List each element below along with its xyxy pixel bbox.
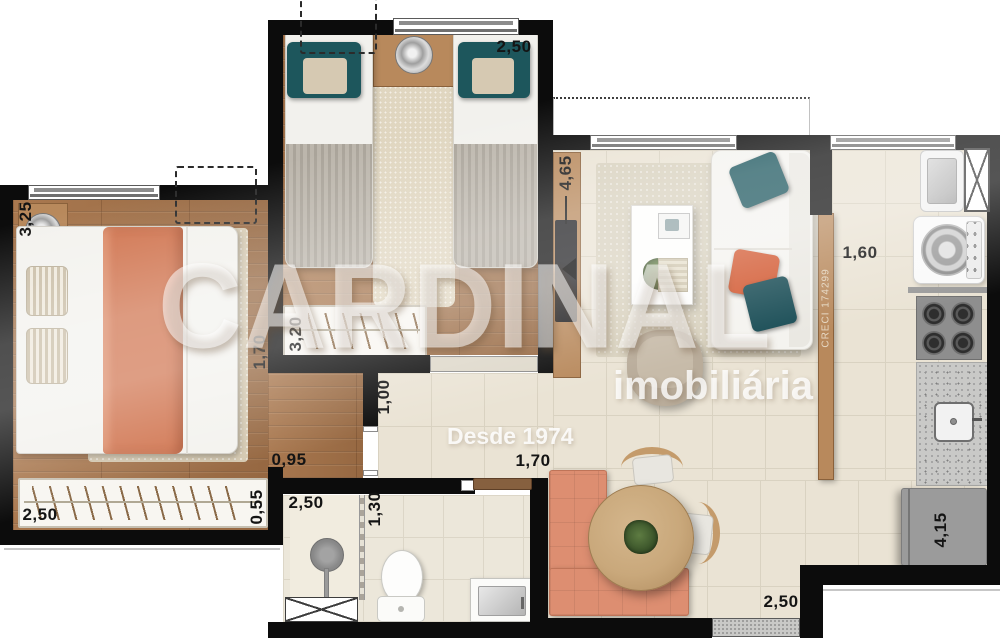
bedroom2-wardrobe-rail — [290, 329, 420, 331]
bedroom2-wardrobe-hangers — [308, 313, 418, 349]
bedroom2-lamp — [395, 36, 433, 74]
hall-door-jamb-bottom — [363, 470, 378, 476]
dim-bedroom1-side: 3,25 — [16, 201, 36, 236]
exterior-line-left — [4, 548, 280, 550]
stove-burner-3 — [922, 331, 946, 355]
dining-service-window — [712, 618, 800, 637]
dim-hall-length: 1,70 — [515, 451, 550, 471]
living-projection — [553, 97, 810, 135]
washer-panel — [966, 221, 982, 279]
service-cabinet — [964, 148, 990, 212]
dim-shower-width: 1,30 — [365, 491, 385, 526]
dim-living-side: 4,65 — [556, 155, 576, 190]
dim-bedroom1-passage: 0,95 — [271, 450, 306, 470]
wall-bedrooms-shared — [268, 20, 283, 373]
sofa-seat-split — [714, 248, 792, 250]
shower-arm — [324, 568, 329, 598]
wall-bedrooms-shared-lower — [268, 467, 283, 530]
bedroom2-rug — [373, 80, 455, 307]
wall-bedroom1-bottom — [0, 530, 283, 545]
bed-pillow-bottom — [26, 328, 68, 384]
kitchen-counter-divider — [818, 213, 834, 480]
laundry-tub-basin — [927, 158, 957, 204]
bedroom1-ac-dashed-box — [175, 166, 257, 224]
bedroom1-window — [28, 185, 160, 200]
dim-bedroom1-wardrobe: 2,50 — [22, 505, 57, 525]
dim-bathroom-width: 2,50 — [288, 493, 323, 513]
single-bed-left-blanket — [286, 144, 372, 267]
bedroom1-wardrobe-rail — [24, 501, 262, 503]
kitchen-faucet — [972, 418, 982, 421]
kitchen-window — [830, 135, 956, 150]
shower-head — [310, 538, 344, 572]
dim-kitchen-side: 4,15 — [931, 512, 951, 547]
bed-runner-orange — [103, 227, 183, 454]
wall-dining-right — [800, 565, 823, 638]
dining-chair-top-seat — [632, 454, 675, 486]
living-window — [590, 135, 737, 150]
wall-bedroom2-bottom — [268, 355, 430, 373]
kitchen-shelf-line — [908, 287, 988, 293]
wall-dining-bottom — [530, 618, 712, 638]
dining-table-plant — [624, 520, 658, 554]
stove-burner-2 — [951, 302, 975, 326]
dim-kitchen-width: 1,60 — [842, 243, 877, 263]
wall-kitchen-step — [810, 135, 832, 215]
bed-pillow-top — [26, 266, 68, 316]
dim-living-tick — [565, 196, 567, 224]
wall-bathroom-bottom — [268, 622, 548, 638]
fridge-door-line — [908, 489, 910, 565]
wall-bedroom1-left — [0, 185, 13, 545]
dim-bedroom2-top: 2,50 — [496, 37, 531, 57]
bathroom-faucet — [521, 597, 524, 609]
dim-bedroom2-wardrobe: 3,20 — [286, 316, 306, 351]
single-bed-right-blanket — [454, 144, 537, 267]
coffee-table-mat — [658, 258, 688, 292]
tray-decor — [665, 219, 679, 231]
floor-plan: 3,25 2,50 4,65 1,60 1,70 3,20 1,00 0,95 … — [0, 0, 1000, 638]
bedroom2-window — [393, 18, 519, 35]
wall-bedroom2-right — [538, 20, 553, 373]
shower-floor-box — [285, 597, 358, 622]
kitchen-faucet-base — [950, 418, 957, 425]
dim-bedroom1-wardrobe-depth: 0,55 — [247, 489, 267, 524]
bathroom-sink — [478, 586, 526, 616]
single-bed-right-beige-pillow — [472, 58, 514, 94]
toilet-button — [398, 606, 404, 612]
wall-kitchen-bottom — [805, 565, 1000, 585]
armchair-seat — [637, 336, 693, 388]
dim-hall-width: 1,00 — [374, 379, 394, 414]
bedroom2-ac-dashed-box — [300, 0, 377, 54]
wall-bathroom-right — [530, 478, 548, 638]
single-bed-left-beige-pillow — [303, 58, 347, 94]
bed-foot-fold — [186, 227, 188, 454]
hall-door-jamb-top — [363, 426, 378, 432]
bedroom1-wardrobe-hangers — [32, 486, 240, 520]
exterior-line-bottomright-h — [820, 589, 1000, 591]
bathroom-door-leaf — [473, 478, 532, 490]
dim-dining-bottom: 2,50 — [763, 592, 798, 612]
dim-bedroom1-right: 1,70 — [250, 334, 270, 369]
stove-burner-4 — [951, 331, 975, 355]
stove-burner-1 — [922, 302, 946, 326]
bedroom2-door-threshold — [430, 356, 538, 372]
